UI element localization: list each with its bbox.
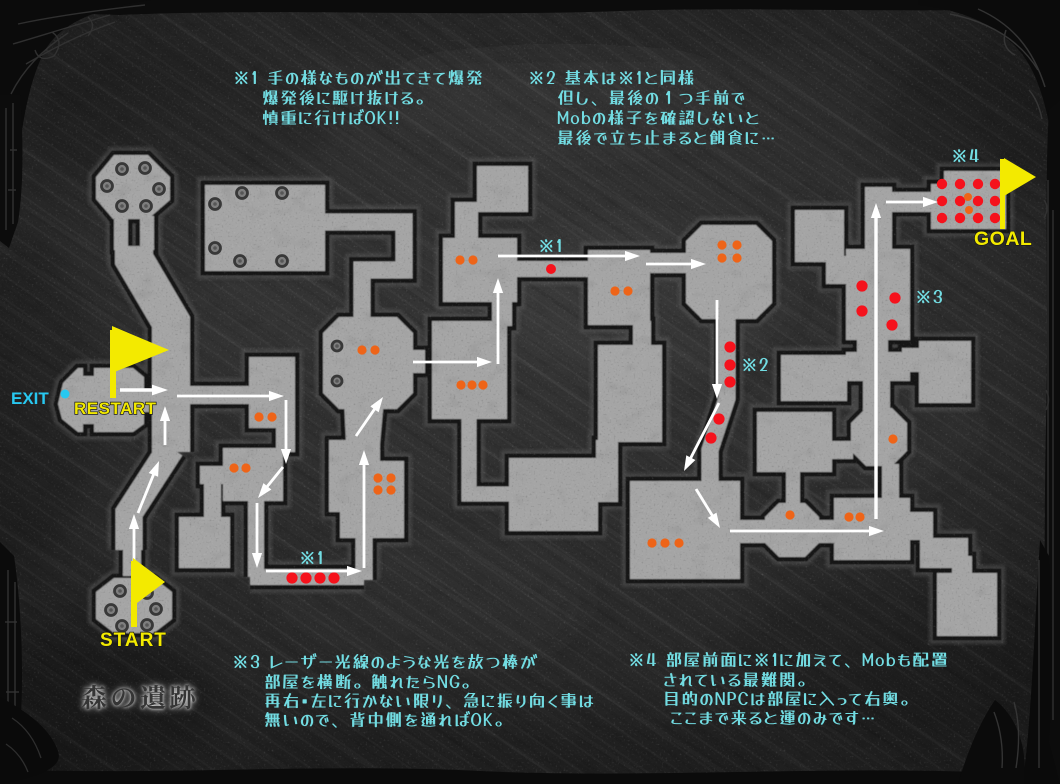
- svg-text:GOAL: GOAL: [974, 228, 1032, 250]
- svg-text:START: START: [100, 630, 167, 651]
- svg-text:RESTART: RESTART: [74, 399, 157, 418]
- svg-text:EXIT: EXIT: [11, 389, 49, 408]
